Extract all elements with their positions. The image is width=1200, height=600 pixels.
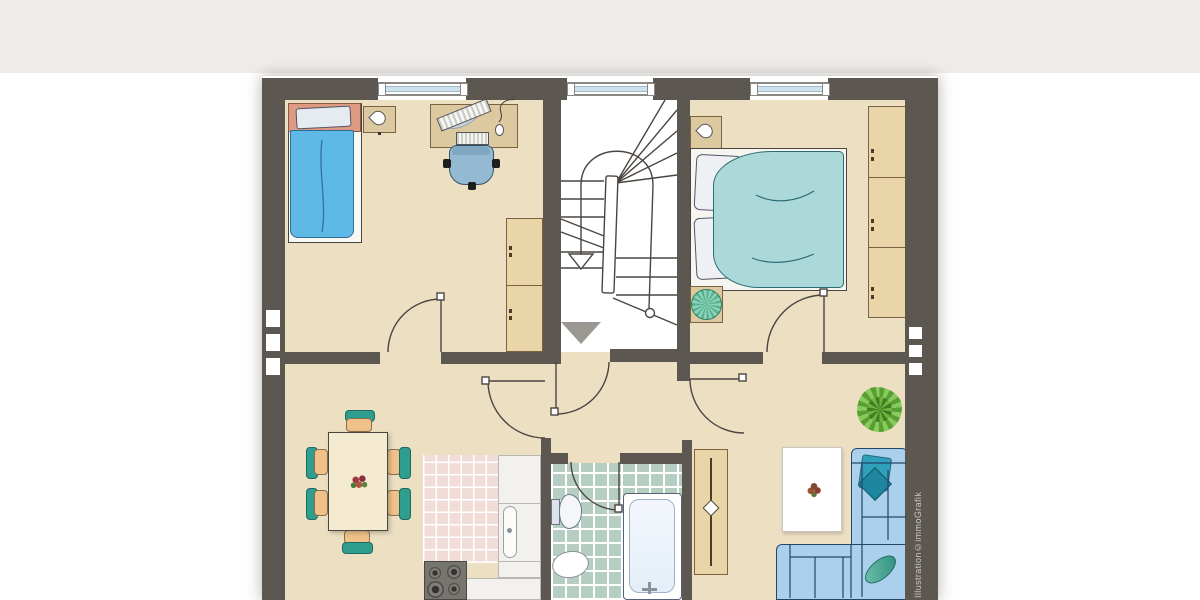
chair-seat [314,490,328,516]
lamp-icon [368,108,389,129]
window-cap [378,83,386,96]
right-wall-vent [909,327,922,339]
window-stairwell [567,78,653,100]
table-flower-centerpiece [348,471,370,493]
wardrobe-handle [871,295,874,299]
right-wall-vent [909,345,922,357]
wall-bedroom2-bottom-right [822,352,905,364]
window-cap [460,83,468,96]
toilet [551,493,583,531]
window-line [567,82,653,84]
office-chair-armrest-left [443,159,451,168]
wall-kitchen-bath [541,438,551,600]
lamp-dot [378,132,381,135]
window-glass [383,86,463,92]
window-line [750,94,828,96]
wall-stairwell-left [543,100,561,364]
bathtub-faucet-bar [642,588,657,591]
potted-plant-radial [691,289,722,320]
wardrobe-handle [871,227,874,231]
bed-duvet [290,130,354,238]
rug-flower [806,480,822,498]
wardrobe-handle [871,287,874,291]
wardrobe-handle [871,149,874,153]
office-chair [449,145,494,185]
wall-bathroom-top-right [620,453,683,464]
hall-sideboard [694,449,728,575]
left-wall-vent [266,310,280,327]
kitchen-tile-floor [423,455,498,563]
wardrobe-divider [507,285,542,286]
chair-seat [314,449,328,475]
wardrobe-handle [509,246,512,250]
window-line [378,82,466,84]
bathtub-basin [629,499,675,593]
burner [447,565,461,579]
double-bed [690,148,847,291]
office-chair-back [452,146,490,155]
chair-cushion [399,488,411,520]
nightstand-top [690,116,722,150]
wall-bathroom-top-left [551,453,568,464]
kitchen-counter-right [498,455,541,578]
toilet-bowl [559,494,582,529]
dining-chair-left-1 [306,447,330,479]
burner [427,581,444,598]
wall-stairwell-bottom [610,349,677,362]
chair-cushion [399,447,411,479]
window-bedroom2 [750,78,828,100]
office-chair-base [468,182,476,190]
background-top-band [0,0,1200,73]
dining-chair-top [345,410,375,433]
wardrobe-handle [871,219,874,223]
wardrobe-handle [509,316,512,320]
window-line [750,82,828,84]
mouse-icon [495,124,504,136]
wardrobe-divider [869,177,905,178]
wardrobe-bedroom2 [868,106,906,318]
left-wall-vent [266,334,280,351]
window-cap [750,83,758,96]
single-bed [288,103,362,243]
rug [782,447,842,532]
wall-bathroom-right [682,440,692,600]
window-line [567,94,653,96]
dining-chair-bottom [342,529,373,553]
burner [448,583,460,595]
stairwell-floor [561,100,677,352]
window-cap [647,83,655,96]
wardrobe-handle [871,157,874,161]
bed-duvet-double [713,151,844,288]
living-plant-inner [863,393,895,425]
keyboard-large [436,98,491,131]
bathtub [623,493,682,600]
stove [424,561,467,600]
lamp-icon [695,121,716,142]
counter-seam [499,503,540,504]
dining-table [328,432,388,531]
wardrobe-handle [509,309,512,313]
burner [429,567,441,579]
office-chair-armrest-right [492,159,500,168]
wardrobe-handle [509,253,512,257]
desk [430,104,518,148]
wall-bedroom2-bottom-left [690,352,763,364]
window-glass [572,86,650,92]
window-line [378,94,466,96]
chair-cushion [342,542,373,554]
wall-shelf-lamp [363,106,396,133]
dining-chair-right-1 [386,447,410,479]
dining-chair-left-2 [306,488,330,520]
wall-bedroom1-bottom-left [285,352,380,364]
chair-seat [346,418,372,432]
kitchen-faucet [507,528,512,533]
floorplan-page: Illustration©immoGrafik [0,0,1200,600]
wardrobe-divider [869,247,905,248]
left-wall-vent [266,358,280,375]
right-wall-vent [909,363,922,375]
bed-pillow [295,106,351,130]
window-cap [822,83,830,96]
dining-chair-right-2 [386,488,410,520]
sideboard-diamond [703,500,720,517]
keyboard-small [456,132,489,145]
window-glass [755,86,825,92]
wall-stairwell-right [677,100,690,381]
window-cap [567,83,575,96]
counter-seam [499,561,540,562]
watermark-text: Illustration©immoGrafik [913,388,935,598]
window-bedroom1 [378,78,466,100]
wardrobe-bedroom1 [506,218,543,352]
nightstand-bottom [690,286,723,323]
